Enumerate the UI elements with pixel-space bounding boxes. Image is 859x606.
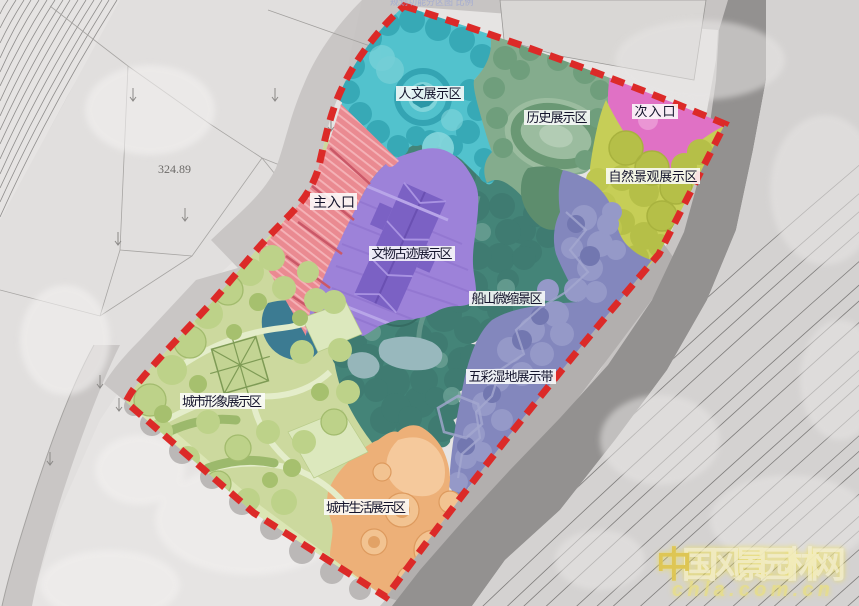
svg-text:船山微缩景区: 船山微缩景区	[472, 291, 543, 306]
svg-text:规划功能分区图 比例: 规划功能分区图 比例	[390, 0, 474, 7]
svg-text:城市形象展示区: 城市形象展示区	[182, 394, 262, 409]
svg-text:主入口: 主入口	[313, 194, 355, 210]
svg-text:次入口: 次入口	[635, 104, 676, 119]
svg-text:人文展示区: 人文展示区	[399, 86, 462, 101]
svg-text:文物古迹展示区: 文物古迹展示区	[372, 246, 453, 261]
svg-text:历史展示区: 历史展示区	[527, 110, 588, 125]
svg-text:自然景观展示区: 自然景观展示区	[609, 169, 698, 184]
svg-text:324.89: 324.89	[158, 162, 191, 176]
svg-text:城市生活展示区: 城市生活展示区	[326, 500, 406, 515]
svg-text:五彩湿地展示带: 五彩湿地展示带	[469, 369, 554, 384]
